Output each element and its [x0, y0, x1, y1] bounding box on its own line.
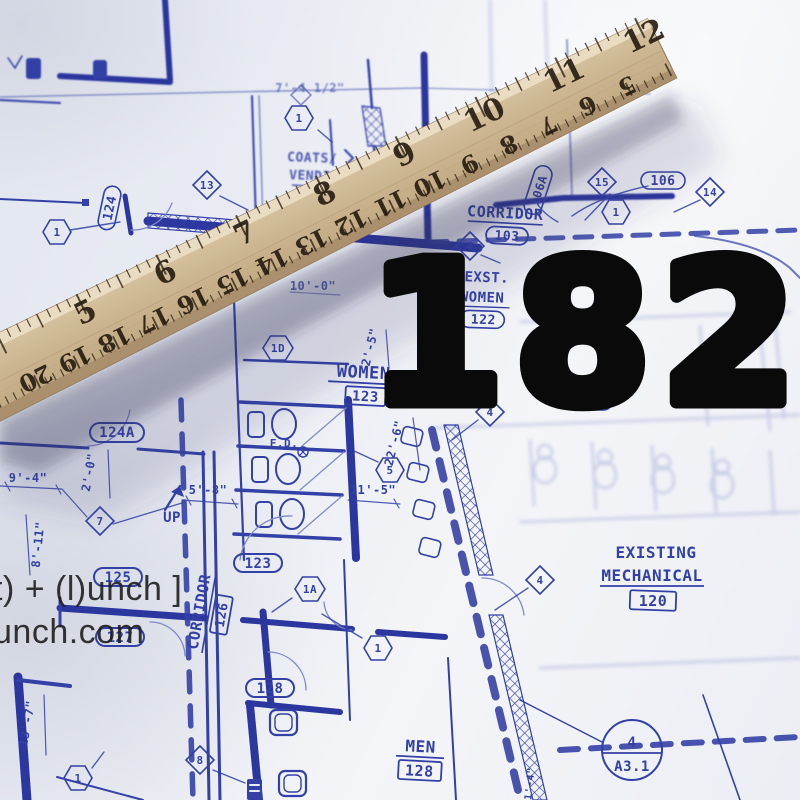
svg-text:14: 14	[703, 186, 717, 199]
svg-text:1: 1	[74, 772, 81, 785]
svg-text:1: 1	[374, 642, 381, 655]
dim-11-5: 11'-5"	[350, 483, 396, 497]
svg-text:8: 8	[196, 754, 203, 767]
big-number-182: 182	[368, 221, 800, 449]
svg-text:13: 13	[200, 179, 214, 192]
hex-marker: 1	[364, 636, 392, 660]
watermark-line2: unch.com	[0, 613, 144, 651]
svg-text:128: 128	[405, 761, 434, 780]
svg-text:5: 5	[386, 464, 393, 477]
svg-text:123: 123	[245, 556, 272, 572]
tag-123: 123	[234, 554, 282, 572]
svg-text:EXISTING: EXISTING	[615, 543, 696, 562]
svg-text:1: 1	[295, 112, 302, 125]
corridor-126-label: CORRIDOR 126	[183, 571, 236, 657]
watermark: t) + (l)unch ]unch.com	[0, 568, 182, 654]
svg-text:128: 128	[257, 681, 284, 697]
tag-128: 128	[246, 679, 294, 697]
svg-text:4: 4	[628, 735, 637, 751]
svg-text:MEN: MEN	[405, 736, 436, 757]
dim-8-11: 8'-11"	[29, 521, 48, 569]
svg-text:MECHANICAL: MECHANICAL	[601, 566, 702, 585]
men-128-label: MEN 128	[395, 736, 445, 781]
hex-marker: 1	[64, 766, 92, 790]
fd-label: F.D.	[270, 437, 299, 450]
hex-marker: 1	[43, 220, 71, 244]
up-label: UP	[163, 510, 181, 526]
svg-text:4: 4	[536, 574, 543, 587]
hex-marker: 1	[285, 106, 313, 130]
diamond-marker: 14	[696, 178, 724, 206]
existing-mechanical-label: EXISTING MECHANICAL 120	[600, 543, 704, 611]
svg-text:1: 1	[53, 226, 60, 239]
blueprint-drawing: COATS/ VENDIN 7'-4 1/2" CORRIDOR 103 106…	[0, 0, 800, 800]
coats-label: COATS/	[287, 150, 337, 167]
svg-text:120: 120	[639, 592, 668, 610]
svg-text:1A: 1A	[303, 583, 317, 596]
hex-marker: 1A	[295, 577, 325, 601]
svg-text:A3.1: A3.1	[614, 759, 650, 775]
dim-5-8: 5'-8"	[189, 483, 228, 497]
watermark-line1: t) + (l)unch ]	[0, 570, 182, 608]
photo-of-blueprint: COATS/ VENDIN 7'-4 1/2" CORRIDOR 103 106…	[0, 0, 800, 800]
diamond-marker: 13	[193, 171, 221, 199]
section-marker-a31: 4 A3.1	[602, 720, 662, 780]
diamond-marker: 4	[526, 566, 554, 594]
